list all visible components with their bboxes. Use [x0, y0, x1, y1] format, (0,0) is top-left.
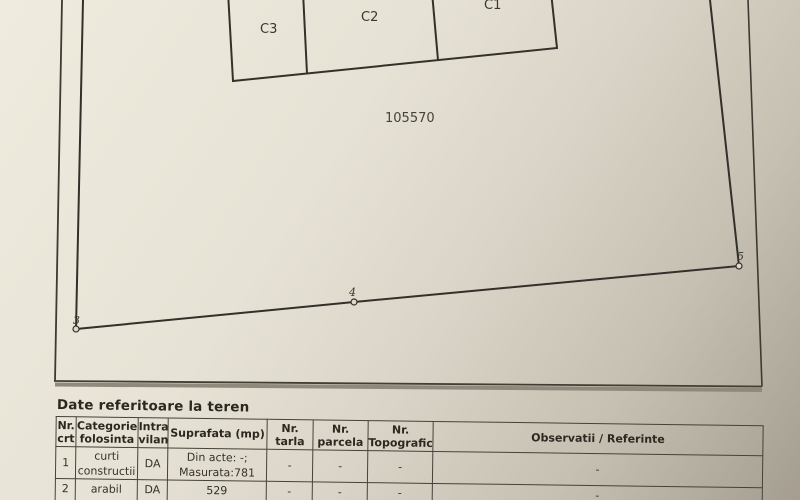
header-line: Nr.: [369, 423, 433, 437]
col-header-categorie-folosinta: Categorie folosinta: [76, 417, 138, 448]
cell-nr-crt: 2: [55, 478, 75, 500]
header-line: Suprafata (mp): [168, 426, 266, 440]
document-photo: 3 4 5 C3 C2 C1 105570 Date referitoare l…: [0, 0, 800, 500]
parcel-number-label: 105570: [385, 111, 435, 126]
col-header-nr-parcela: Nr. parcela: [313, 420, 368, 451]
header-line: Nr.: [314, 422, 368, 436]
cell-intra-vilan: DA: [137, 448, 167, 480]
cell-nr-topografic: -: [367, 483, 432, 500]
building-divider-c3-c2: [303, 0, 307, 74]
cell-observatii: -: [432, 451, 762, 487]
parcel-boundary: [76, 0, 739, 329]
col-header-nr-topografic: Nr. Topografic: [368, 421, 433, 452]
header-line: Categorie: [77, 419, 138, 433]
cell-nr-parcela: -: [312, 450, 367, 483]
terrain-table: Nr. crt Categorie folosinta Intra vilan …: [55, 416, 764, 500]
cell-line: curti: [76, 448, 137, 464]
boundary-point-label-4: 4: [348, 286, 356, 299]
frame-right-line: [748, 0, 762, 387]
cell-intra-vilan: DA: [137, 480, 167, 500]
col-header-suprafata: Suprafata (mp): [168, 418, 267, 449]
header-line: Nr.: [268, 421, 313, 435]
col-header-observatii: Observatii / Referinte: [433, 421, 763, 455]
boundary-point-label-3: 3: [73, 314, 80, 327]
cell-line: Masurata:781: [168, 464, 266, 480]
header-line: parcela: [313, 435, 367, 449]
building-label-c1: C1: [484, 0, 501, 13]
header-line: Intra: [139, 420, 168, 433]
cell-line: Din acte: -;: [168, 449, 266, 465]
cell-nr-topografic: -: [367, 451, 432, 484]
building-label-c2: C2: [361, 10, 378, 25]
cell-categorie: curti constructii: [75, 447, 137, 480]
building-outline: [228, 0, 557, 81]
header-line: Topografic: [368, 436, 432, 450]
cell-suprafata: 529: [167, 480, 266, 500]
col-header-nr-crt: Nr. crt: [56, 417, 76, 447]
cell-nr-tarla: -: [266, 481, 312, 500]
terrain-section: Date referitoare la teren Nr. crt Catego…: [55, 397, 766, 500]
header-line: tarla: [267, 434, 312, 448]
header-line: vilan: [138, 433, 167, 446]
header-line: folosinta: [76, 432, 137, 446]
building-label-c3: C3: [260, 22, 277, 37]
cell-categorie: arabil: [75, 479, 137, 500]
boundary-point-label-5: 5: [737, 250, 744, 263]
building-divider-c2-c1: [432, 0, 438, 60]
col-header-intra-vilan: Intra vilan: [138, 418, 168, 448]
header-line: Nr.: [57, 419, 76, 432]
cell-suprafata: Din acte: -; Masurata:781: [167, 448, 266, 481]
header-line: crt: [56, 432, 75, 445]
col-header-nr-tarla: Nr. tarla: [267, 419, 313, 450]
cell-nr-parcela: -: [312, 482, 367, 500]
cell-line: constructii: [76, 463, 137, 479]
cell-nr-tarla: -: [266, 449, 312, 482]
frame-left-line: [55, 0, 62, 381]
header-line: Observatii / Referinte: [433, 430, 762, 447]
cell-nr-crt: 1: [55, 447, 75, 479]
boundary-point-marker-5: [736, 263, 742, 269]
boundary-point-marker-4: [351, 299, 357, 305]
